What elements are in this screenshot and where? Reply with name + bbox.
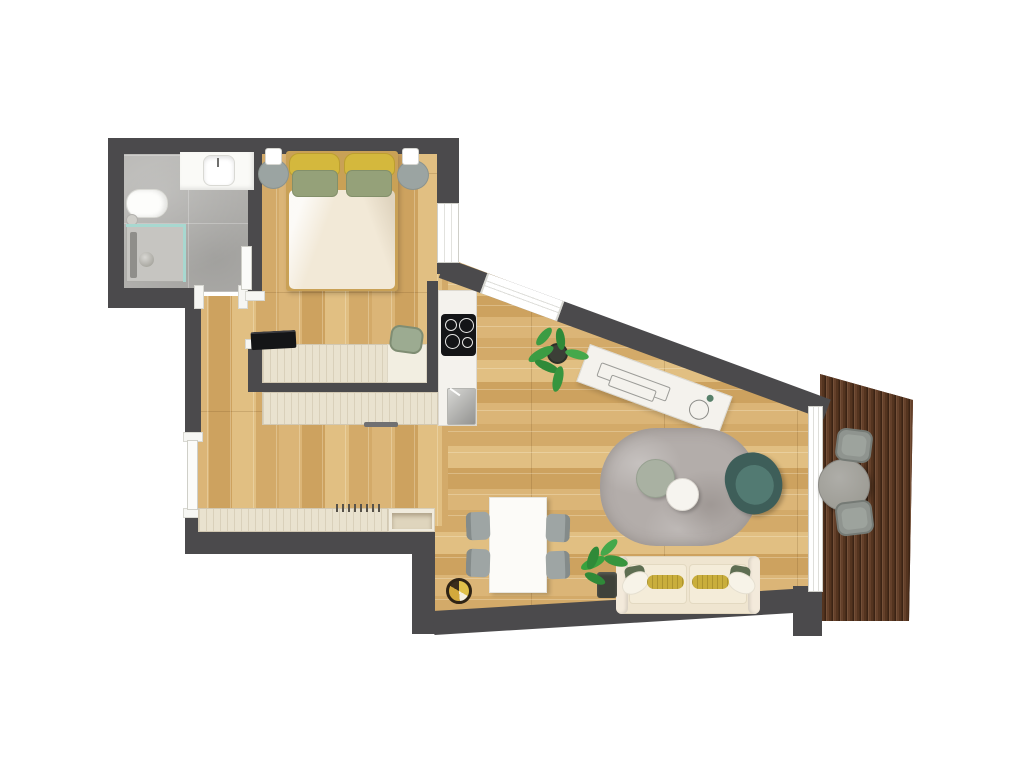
- wall-balcony-stub-bottom: [793, 586, 822, 636]
- sofa-bolster-yellow-left: [647, 575, 684, 589]
- burner-bottom-left: [445, 334, 460, 349]
- balcony-chair-upper: [834, 427, 874, 464]
- balcony-chair-lower-seat: [841, 507, 868, 531]
- wall-lamp-right: [402, 148, 419, 165]
- shower-glass-top: [126, 224, 186, 227]
- sideboard-end-unit: [388, 508, 435, 532]
- bedroom-desk-chair: [388, 324, 424, 355]
- balcony-sliding-door-glass: [808, 406, 823, 592]
- bedroom-window: [437, 203, 459, 263]
- bathroom-door-jamb-left: [194, 285, 204, 309]
- shower-drain: [139, 252, 154, 267]
- wash-basin: [203, 155, 235, 186]
- wall-interior-horizontal: [248, 383, 438, 392]
- bed-duvet: [289, 190, 395, 289]
- burner-top-right: [459, 318, 474, 333]
- radiator-grille: [336, 504, 384, 512]
- bed-pillow-green-left: [292, 170, 338, 197]
- bathroom-door-leaf: [241, 246, 252, 290]
- shower-tray: [126, 226, 184, 282]
- bed-pillow-green-right: [346, 170, 392, 197]
- sink-faucet: [450, 388, 461, 397]
- wall-hall-bottom: [185, 532, 435, 554]
- laptop: [251, 330, 297, 350]
- shower-glass-right: [183, 224, 186, 282]
- coffee-table-small: [666, 478, 699, 511]
- cooktop: [441, 314, 476, 356]
- dining-chair-2: [466, 549, 491, 578]
- shower-drain-channel: [130, 232, 137, 278]
- burner-top-left: [445, 319, 457, 331]
- balcony-chair-upper-seat: [841, 434, 867, 458]
- entry-door-leaf: [187, 440, 198, 510]
- sideboard-cubby: [392, 513, 432, 529]
- floor-clock: [446, 578, 472, 604]
- island-tap: [706, 394, 715, 403]
- burner-bottom-right: [462, 337, 473, 348]
- wall-left-upper: [185, 296, 201, 442]
- wall-step: [412, 530, 435, 634]
- dining-table: [489, 497, 547, 593]
- armchair-seat: [730, 460, 779, 511]
- sofa: [616, 556, 760, 614]
- dining-chair-1: [466, 512, 491, 541]
- cabinet-handle: [364, 422, 398, 427]
- wall-bathroom-left: [108, 138, 124, 306]
- dining-chair-3: [546, 514, 571, 543]
- wall-lamp-left: [265, 148, 282, 165]
- wall-bedroom-right-upper: [437, 138, 459, 205]
- sofa-bolster-yellow-right: [692, 575, 729, 589]
- balcony-chair-lower: [834, 499, 875, 537]
- kitchen-lower-cabinets: [262, 392, 438, 425]
- floor-plan-canvas: [0, 0, 1024, 768]
- bedroom-doorway-jamb-top: [245, 291, 265, 301]
- kitchen-sink: [447, 388, 476, 425]
- floor-living-dining: [0, 0, 1024, 768]
- wall-kitchen-interior: [427, 281, 438, 392]
- basin-faucet: [217, 158, 219, 167]
- dining-chair-4: [546, 551, 571, 580]
